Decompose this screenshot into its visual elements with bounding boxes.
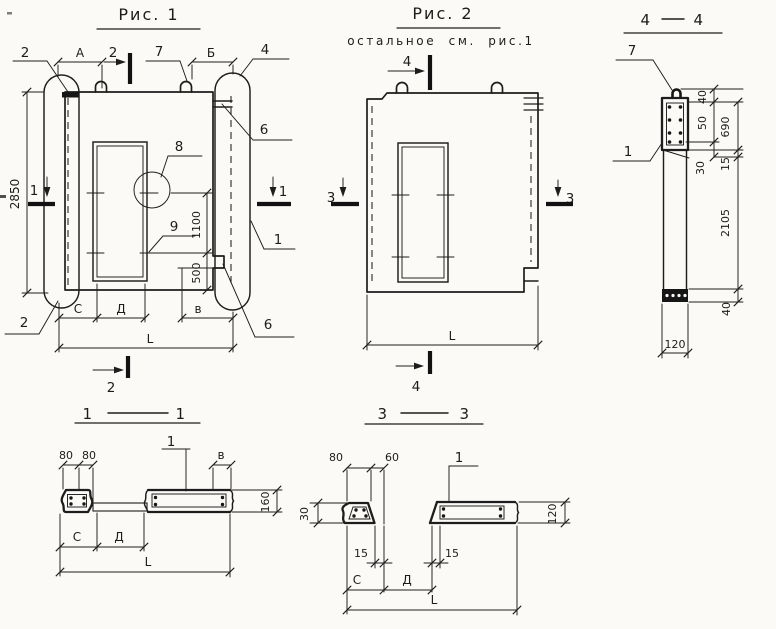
dim-L-label: L (147, 332, 154, 346)
fig2-subtitle: остальное см. рис.1 (347, 34, 535, 48)
scan-speck (0, 195, 6, 198)
dim-15-label: 15 (354, 547, 368, 560)
dim-50-label: 50 (696, 116, 709, 130)
dim-L-label: L (431, 593, 438, 607)
dim-D-label: Д (116, 302, 125, 316)
dim-80-label: 80 (82, 449, 96, 462)
technical-drawing: Рис. 1 2 7 4 (0, 0, 776, 629)
callout-2-label: 2 (20, 315, 29, 331)
section-4-4-title: 4 (693, 11, 704, 29)
fig1-title: Рис. 1 (118, 5, 179, 24)
fig2-title: Рис. 2 (412, 4, 473, 23)
dim-690-label: 690 (719, 117, 732, 138)
dim-C-label: С (74, 302, 82, 316)
dim-40-top-label: 40 (696, 90, 709, 104)
dim-120-label: 120 (546, 504, 559, 525)
callout-7-label: 7 (628, 43, 637, 59)
dim-80-label: 80 (59, 449, 73, 462)
callout-8-label: 8 (175, 139, 184, 155)
callout-6-label: 6 (260, 122, 269, 138)
callout-7-label: 7 (155, 44, 164, 60)
dim-30-label: 30 (694, 161, 707, 175)
dim-D-label: Д (114, 530, 123, 544)
callout-9-label: 9 (170, 219, 179, 235)
section-3-3-title: 3 (459, 405, 470, 423)
dim-80-label: 80 (329, 451, 343, 464)
section-1-mark: 1 (279, 184, 288, 200)
dim-2105-label: 2105 (719, 209, 732, 237)
dim-v-label: в (217, 448, 224, 462)
dim-v-label: в (194, 302, 201, 316)
dim-160-label: 160 (259, 492, 272, 513)
callout-4-label: 4 (261, 42, 270, 58)
dim-B-label: Б (207, 46, 215, 60)
dim-15-label: 15 (445, 547, 459, 560)
dim-40-bottom-label: 40 (720, 302, 733, 316)
section-2-mark: 2 (107, 380, 116, 396)
dim-2850-label: 2850 (8, 179, 22, 210)
scan-speck (7, 12, 12, 15)
section-3-3-title: 3 (377, 405, 388, 423)
dim-L-label: L (449, 329, 456, 343)
callout-1-label: 1 (167, 434, 176, 450)
dim-A-label: А (76, 46, 85, 60)
callout-1-label: 1 (274, 232, 283, 248)
drawing-sheet: Рис. 1 2 7 4 (0, 0, 776, 629)
dim-L-label: L (145, 555, 152, 569)
callout-6-label: 6 (264, 317, 273, 333)
callout-1-label: 1 (624, 144, 633, 160)
dim-1100-label: 1100 (190, 211, 203, 239)
section-1-1-title: 1 (82, 405, 93, 423)
dim-500-label: 500 (190, 263, 203, 284)
section-4-mark: 4 (403, 54, 412, 70)
section-2-mark: 2 (109, 45, 118, 61)
dim-15-label: 15 (719, 157, 732, 171)
dim-D-label: Д (402, 573, 411, 587)
dim-C-label: С (73, 530, 81, 544)
section-1-1-title: 1 (175, 405, 186, 423)
callout-1-label: 1 (455, 450, 464, 466)
section-4-mark: 4 (412, 379, 421, 395)
callout-2-label: 2 (21, 45, 30, 61)
dim-30-label: 30 (298, 507, 311, 521)
dim-C-label: С (353, 573, 361, 587)
dim-60-label: 60 (385, 451, 399, 464)
dim-120-label: 120 (665, 338, 686, 351)
section-4-4-title: 4 (640, 11, 651, 29)
section-1-mark: 1 (30, 183, 39, 199)
